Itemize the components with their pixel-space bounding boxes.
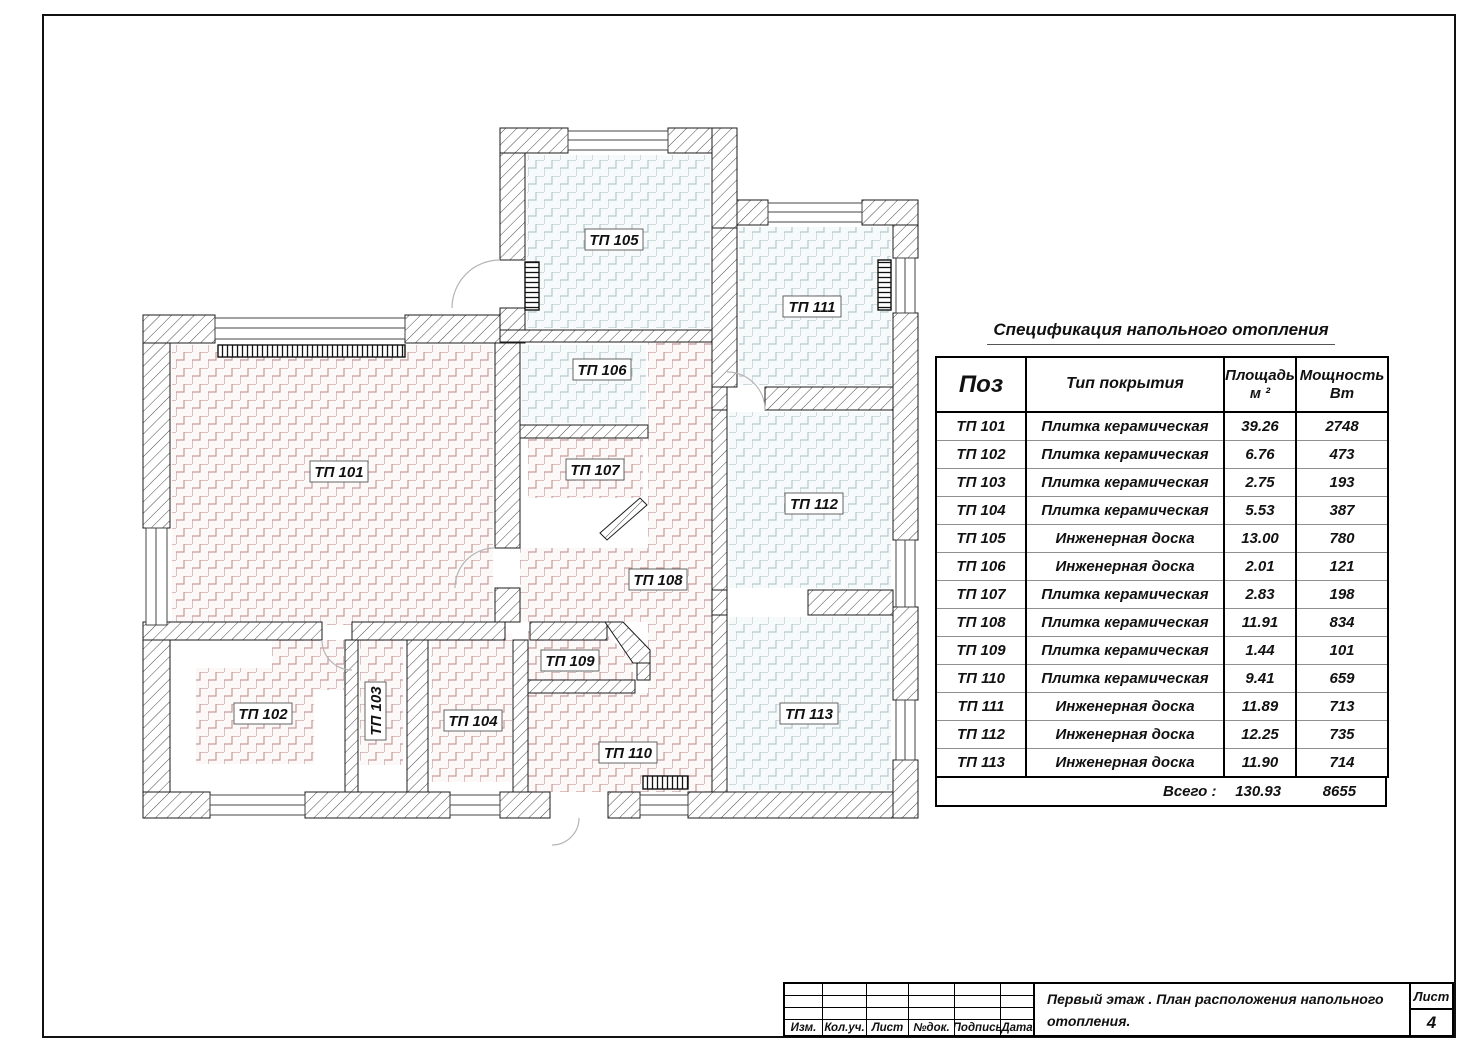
wall-segment xyxy=(712,128,737,228)
cell-area: 39.26 xyxy=(1224,412,1296,441)
wall-segment xyxy=(893,313,918,540)
room-label-tp112: ТП 112 xyxy=(785,493,843,514)
col-label-podpis: Подпись xyxy=(955,1020,1001,1035)
table-row: ТП 110 Плитка керамическая 9.41 659 xyxy=(936,665,1388,693)
wall-segment xyxy=(712,410,727,590)
cell-pos: ТП 108 xyxy=(936,609,1026,637)
document-title: Первый этаж . План расположения напольно… xyxy=(1035,984,1409,1035)
grid-cell xyxy=(785,1008,823,1020)
cell-area: 6.76 xyxy=(1224,441,1296,469)
svg-text:ТП 106: ТП 106 xyxy=(577,362,627,379)
grid-cell xyxy=(955,1008,1001,1020)
zone-tp106 xyxy=(522,345,646,423)
specification-section: Спецификация напольного отопления Поз Ти… xyxy=(935,320,1387,807)
cell-area: 11.89 xyxy=(1224,693,1296,721)
spec-table-title: Спецификация напольного отопления xyxy=(935,320,1387,345)
room-label-tp104: ТП 104 xyxy=(444,710,502,731)
cell-area: 1.44 xyxy=(1224,637,1296,665)
wall-segment xyxy=(500,128,568,153)
table-row: ТП 111 Инженерная доска 11.89 713 xyxy=(936,693,1388,721)
cell-power: 387 xyxy=(1296,497,1388,525)
window xyxy=(896,258,915,313)
cell-type: Инженерная доска xyxy=(1026,749,1224,778)
col-header-area-line1: Площадь xyxy=(1225,367,1295,384)
svg-text:ТП 105: ТП 105 xyxy=(589,232,639,249)
window xyxy=(450,795,500,815)
cell-type: Инженерная доска xyxy=(1026,693,1224,721)
wall-segment xyxy=(530,622,607,640)
cell-type: Инженерная доска xyxy=(1026,525,1224,553)
grid-cell xyxy=(823,996,867,1008)
spec-table: Поз Тип покрытия Площадь м ² Мощность Вт… xyxy=(935,356,1389,778)
cell-area: 2.75 xyxy=(1224,469,1296,497)
window xyxy=(896,700,915,760)
cell-type: Плитка керамическая xyxy=(1026,469,1224,497)
room-label-tp106: ТП 106 xyxy=(573,359,631,380)
grid-cell xyxy=(867,1008,909,1020)
wall-segment xyxy=(712,615,727,792)
wall-segment xyxy=(688,792,918,818)
wall-segment xyxy=(808,590,893,615)
cell-type: Инженерная доска xyxy=(1026,553,1224,581)
room-label-tp105: ТП 105 xyxy=(585,229,643,250)
cell-area: 5.53 xyxy=(1224,497,1296,525)
title-block: Изм. Кол.уч. Лист №док. Подпись Дата Пер… xyxy=(783,982,1454,1037)
wall-segment xyxy=(528,680,635,693)
wall-segment xyxy=(305,792,450,818)
cell-power: 121 xyxy=(1296,553,1388,581)
room-label-tp109: ТП 109 xyxy=(541,650,599,671)
zone-tp104 xyxy=(431,633,512,782)
cell-pos: ТП 102 xyxy=(936,441,1026,469)
cell-area: 2.01 xyxy=(1224,553,1296,581)
radiator xyxy=(878,260,891,310)
grid-cell xyxy=(909,1008,955,1020)
wall-diagonal xyxy=(600,498,647,540)
col-label-ndok: №док. xyxy=(909,1020,955,1035)
grid-cell xyxy=(1001,1008,1033,1020)
window xyxy=(896,540,915,607)
wall-segment xyxy=(513,640,528,792)
cell-power: 713 xyxy=(1296,693,1388,721)
cell-area: 2.83 xyxy=(1224,581,1296,609)
cell-pos: ТП 101 xyxy=(936,412,1026,441)
room-label-tp107: ТП 107 xyxy=(566,459,624,480)
svg-text:ТП 111: ТП 111 xyxy=(789,299,836,316)
col-header-power-line2: Вт xyxy=(1297,385,1387,402)
window xyxy=(568,131,668,150)
spec-total-row: Всего : 130.93 8655 xyxy=(935,778,1387,807)
grid-cell xyxy=(1001,996,1033,1008)
cell-pos: ТП 107 xyxy=(936,581,1026,609)
floor-plan: ТП 101 ТП 102 ТП 103 ТП 104 ТП 105 ТП 10… xyxy=(130,105,942,853)
wall-segment xyxy=(143,622,322,640)
grid-cell xyxy=(823,1008,867,1020)
spec-header-row: Поз Тип покрытия Площадь м ² Мощность Вт xyxy=(936,357,1388,412)
room-label-tp110: ТП 110 xyxy=(599,742,657,763)
cell-power: 780 xyxy=(1296,525,1388,553)
cell-power: 473 xyxy=(1296,441,1388,469)
table-row: ТП 103 Плитка керамическая 2.75 193 xyxy=(936,469,1388,497)
col-header-type: Тип покрытия xyxy=(1026,357,1224,412)
wall-segment xyxy=(500,153,525,260)
svg-text:ТП 104: ТП 104 xyxy=(448,713,498,730)
title-block-grid: Изм. Кол.уч. Лист №док. Подпись Дата xyxy=(785,984,1035,1035)
cell-pos: ТП 109 xyxy=(936,637,1026,665)
svg-text:ТП 103: ТП 103 xyxy=(368,686,385,736)
room-label-tp113: ТП 113 xyxy=(780,703,838,724)
total-power: 8655 xyxy=(1294,783,1385,800)
radiator xyxy=(643,776,688,789)
table-row: ТП 104 Плитка керамическая 5.53 387 xyxy=(936,497,1388,525)
cell-pos: ТП 111 xyxy=(936,693,1026,721)
cell-type: Плитка керамическая xyxy=(1026,581,1224,609)
svg-text:ТП 112: ТП 112 xyxy=(790,496,839,513)
svg-text:ТП 107: ТП 107 xyxy=(570,462,620,479)
table-row: ТП 105 Инженерная доска 13.00 780 xyxy=(936,525,1388,553)
table-row: ТП 113 Инженерная доска 11.90 714 xyxy=(936,749,1388,778)
radiator xyxy=(218,345,405,357)
grid-cell xyxy=(955,996,1001,1008)
cell-type: Инженерная доска xyxy=(1026,721,1224,749)
wall-segment xyxy=(407,640,428,792)
cell-area: 11.90 xyxy=(1224,749,1296,778)
wall-segment xyxy=(143,792,210,818)
cell-pos: ТП 110 xyxy=(936,665,1026,693)
svg-text:ТП 102: ТП 102 xyxy=(238,706,288,723)
svg-text:ТП 110: ТП 110 xyxy=(604,745,653,762)
cell-power: 659 xyxy=(1296,665,1388,693)
cell-type: Плитка керамическая xyxy=(1026,497,1224,525)
col-header-power-line1: Мощность xyxy=(1297,367,1387,384)
table-row: ТП 101 Плитка керамическая 39.26 2748 xyxy=(936,412,1388,441)
window xyxy=(146,528,167,625)
sheet-number-box: Лист 4 xyxy=(1409,984,1452,1035)
col-label-data: Дата xyxy=(1001,1020,1033,1035)
drawing-sheet: ТП 101 ТП 102 ТП 103 ТП 104 ТП 105 ТП 10… xyxy=(0,0,1468,1057)
grid-cell xyxy=(785,996,823,1008)
heating-zones xyxy=(172,155,891,792)
document-title-line1: Первый этаж . План расположения напольно… xyxy=(1047,989,1405,1011)
col-header-pos: Поз xyxy=(936,357,1026,412)
wall-segment xyxy=(143,343,170,528)
table-row: ТП 102 Плитка керамическая 6.76 473 xyxy=(936,441,1388,469)
table-row: ТП 107 Плитка керамическая 2.83 198 xyxy=(936,581,1388,609)
wall-segment xyxy=(495,343,520,548)
cell-power: 2748 xyxy=(1296,412,1388,441)
col-label-izm: Изм. xyxy=(785,1020,823,1035)
wall-segment xyxy=(405,315,505,343)
svg-text:ТП 109: ТП 109 xyxy=(545,653,595,670)
grid-cell xyxy=(909,996,955,1008)
cell-type: Плитка керамическая xyxy=(1026,637,1224,665)
door-arc xyxy=(552,818,579,845)
wall-segment xyxy=(712,387,727,410)
table-row: ТП 109 Плитка керамическая 1.44 101 xyxy=(936,637,1388,665)
wall-segment xyxy=(712,228,737,387)
wall-segment xyxy=(893,760,918,818)
cell-pos: ТП 112 xyxy=(936,721,1026,749)
wall-segment xyxy=(520,425,648,438)
radiator xyxy=(525,262,539,310)
window xyxy=(215,318,405,339)
sheet-number: 4 xyxy=(1411,1010,1452,1035)
table-row: ТП 108 Плитка керамическая 11.91 834 xyxy=(936,609,1388,637)
wall-segment xyxy=(765,387,893,410)
total-label: Всего : xyxy=(937,783,1222,800)
room-label-tp103: ТП 103 xyxy=(365,682,386,740)
table-row: ТП 112 Инженерная доска 12.25 735 xyxy=(936,721,1388,749)
grid-cell xyxy=(1001,984,1033,996)
wall-segment xyxy=(893,225,918,258)
cell-pos: ТП 113 xyxy=(936,749,1026,778)
room-label-tp111: ТП 111 xyxy=(783,296,841,317)
cell-power: 101 xyxy=(1296,637,1388,665)
window xyxy=(640,795,688,815)
table-row: ТП 106 Инженерная доска 2.01 121 xyxy=(936,553,1388,581)
cell-power: 714 xyxy=(1296,749,1388,778)
grid-cell xyxy=(867,984,909,996)
wall-segment xyxy=(352,622,505,640)
cell-area: 9.41 xyxy=(1224,665,1296,693)
col-label-koluch: Кол.уч. xyxy=(823,1020,867,1035)
svg-text:ТП 101: ТП 101 xyxy=(314,464,363,481)
room-label-tp108: ТП 108 xyxy=(629,569,687,590)
grid-cell xyxy=(785,984,823,996)
total-area: 130.93 xyxy=(1222,783,1293,800)
wall-segment xyxy=(500,330,712,342)
cell-pos: ТП 105 xyxy=(936,525,1026,553)
cell-pos: ТП 103 xyxy=(936,469,1026,497)
wall-segment xyxy=(495,588,520,622)
zone-tp101 xyxy=(172,345,493,625)
grid-cell xyxy=(909,984,955,996)
cell-area: 11.91 xyxy=(1224,609,1296,637)
sheet-label: Лист xyxy=(1411,984,1452,1010)
wall-segment xyxy=(637,663,650,680)
wall-segment xyxy=(143,315,215,343)
col-header-area-line2: м ² xyxy=(1225,385,1295,402)
cell-power: 198 xyxy=(1296,581,1388,609)
svg-text:ТП 113: ТП 113 xyxy=(785,706,834,723)
cell-power: 193 xyxy=(1296,469,1388,497)
wall-segment xyxy=(345,640,358,792)
svg-text:ТП 108: ТП 108 xyxy=(633,572,683,589)
room-label-tp101: ТП 101 xyxy=(310,461,368,482)
wall-segment xyxy=(608,792,640,818)
grid-cell xyxy=(823,984,867,996)
cell-type: Плитка керамическая xyxy=(1026,665,1224,693)
cell-type: Плитка керамическая xyxy=(1026,412,1224,441)
grid-cell xyxy=(955,984,1001,996)
window xyxy=(768,203,862,222)
cell-type: Плитка керамическая xyxy=(1026,441,1224,469)
cell-power: 834 xyxy=(1296,609,1388,637)
window xyxy=(210,795,305,815)
document-title-line2: отопления. xyxy=(1047,1011,1405,1033)
zone-tp102 xyxy=(196,640,344,764)
cell-area: 12.25 xyxy=(1224,721,1296,749)
col-label-list: Лист xyxy=(867,1020,909,1035)
wall-segment xyxy=(500,792,550,818)
room-label-tp102: ТП 102 xyxy=(234,703,292,724)
wall-segment xyxy=(862,200,918,225)
wall-segment xyxy=(737,200,768,225)
col-header-power: Мощность Вт xyxy=(1296,357,1388,412)
wall-segment xyxy=(712,590,727,615)
grid-cell xyxy=(867,996,909,1008)
cell-pos: ТП 104 xyxy=(936,497,1026,525)
cell-power: 735 xyxy=(1296,721,1388,749)
cell-pos: ТП 106 xyxy=(936,553,1026,581)
cell-type: Плитка керамическая xyxy=(1026,609,1224,637)
wall-segment xyxy=(143,625,170,792)
cell-area: 13.00 xyxy=(1224,525,1296,553)
wall-segment xyxy=(893,607,918,700)
door-arc xyxy=(452,260,500,308)
col-header-area: Площадь м ² xyxy=(1224,357,1296,412)
